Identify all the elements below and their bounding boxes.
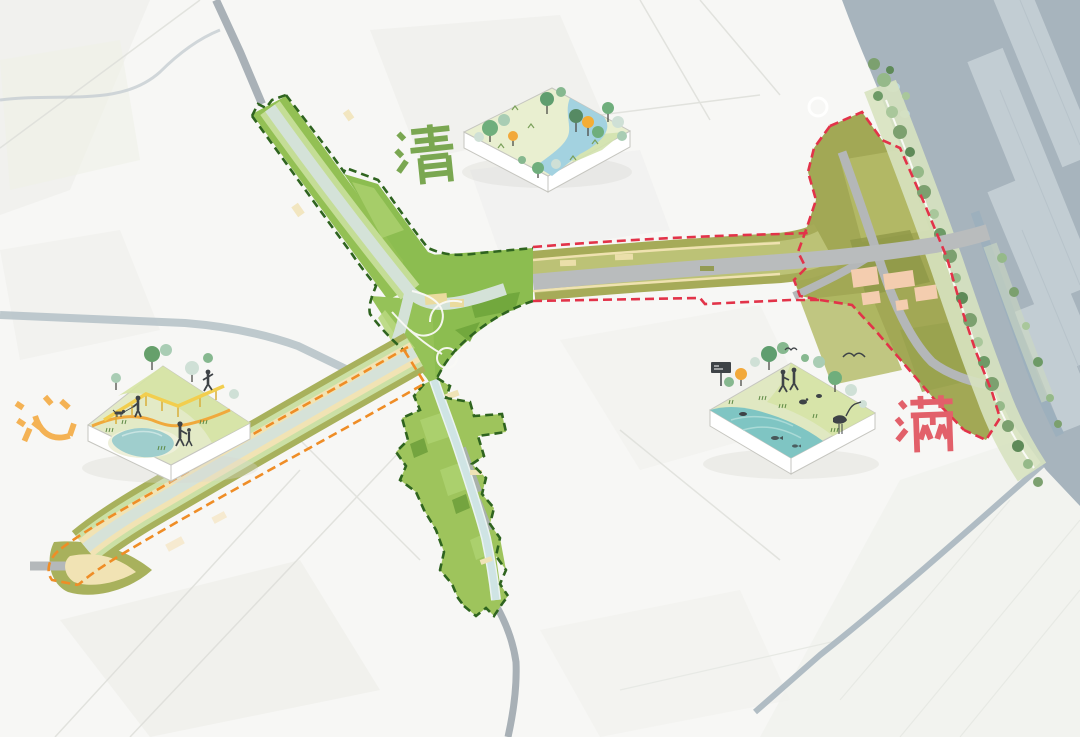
qing-glyph xyxy=(389,119,459,189)
otter-icon xyxy=(816,394,822,398)
orange-tree xyxy=(735,368,747,380)
label-qing: 清 xyxy=(389,119,460,194)
duck-icon xyxy=(799,400,807,405)
orange-tree xyxy=(582,116,594,128)
otter-icon xyxy=(739,412,747,416)
man-glyph xyxy=(891,391,957,457)
label-man: 满 xyxy=(891,391,957,462)
master-plan-map xyxy=(0,0,1080,737)
orange-tree xyxy=(508,131,518,141)
